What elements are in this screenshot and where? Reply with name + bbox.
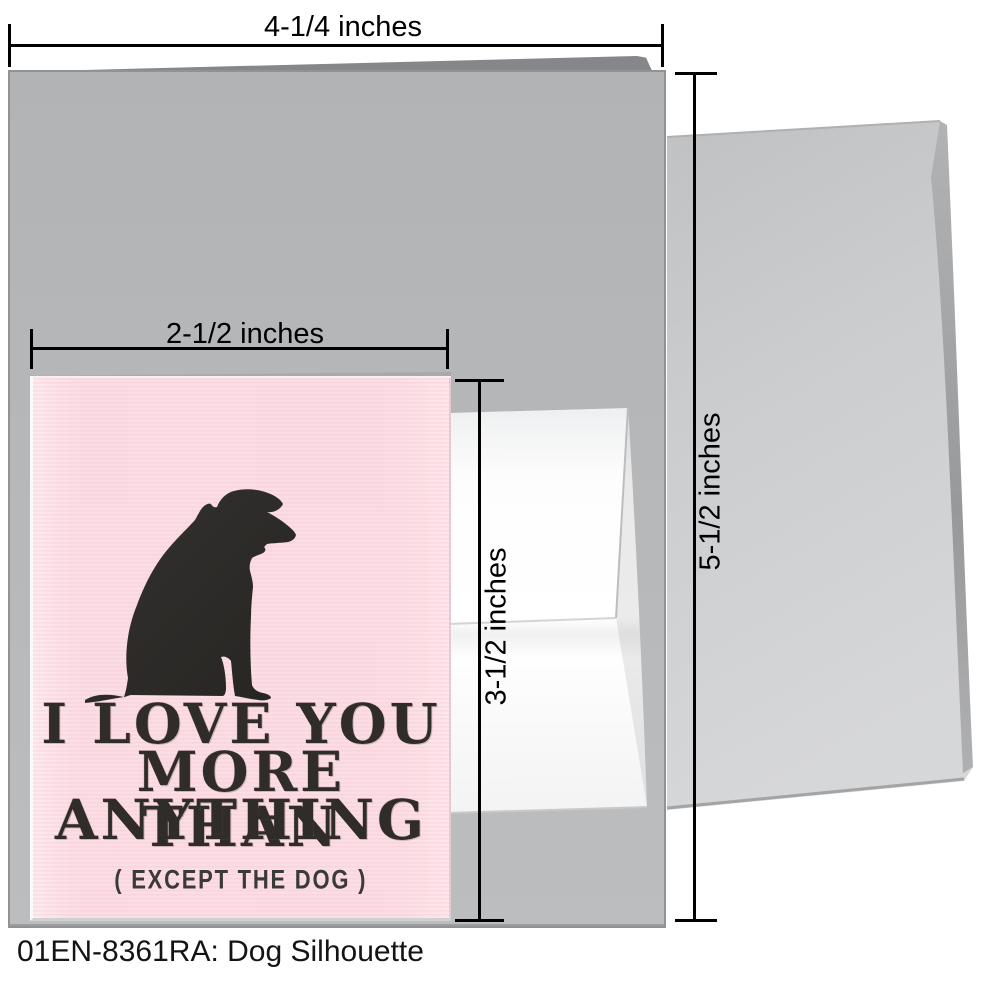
dimension-tick — [455, 379, 504, 382]
dimension-tick — [675, 72, 717, 75]
dimension-tick — [455, 919, 504, 922]
dog-silhouette-icon — [61, 464, 306, 709]
product-image: I LOVE YOU MORE THAN ANYTHING ( EXCEPT T… — [0, 0, 984, 984]
card-subline: ( EXCEPT THE DOG ) — [33, 866, 449, 895]
dimension-tick — [30, 329, 33, 369]
dimension-label-envelope-height: 5-1/2 inches — [697, 382, 726, 602]
dimension-label-small-card-height: 3-1/2 inches — [483, 527, 512, 727]
dimension-label-small-card-width: 2-1/2 inches — [95, 320, 395, 349]
product-caption: 01EN-8361RA: Dog Silhouette — [17, 934, 424, 970]
headline-line-3: ANYTHING — [33, 792, 449, 847]
dimension-tick — [446, 329, 449, 369]
dimension-label-large-card-width: 4-1/4 inches — [143, 13, 543, 42]
dimension-line-large-card-width — [9, 44, 664, 47]
dimension-tick — [661, 24, 664, 67]
small-greeting-card: I LOVE YOU MORE THAN ANYTHING ( EXCEPT T… — [30, 376, 451, 921]
small-envelope — [445, 400, 655, 820]
dimension-tick — [8, 24, 11, 67]
dimension-tick — [675, 919, 717, 922]
dimension-line-small-card-width — [31, 347, 449, 350]
card-subline-text: ( EXCEPT THE DOG ) — [115, 865, 368, 896]
